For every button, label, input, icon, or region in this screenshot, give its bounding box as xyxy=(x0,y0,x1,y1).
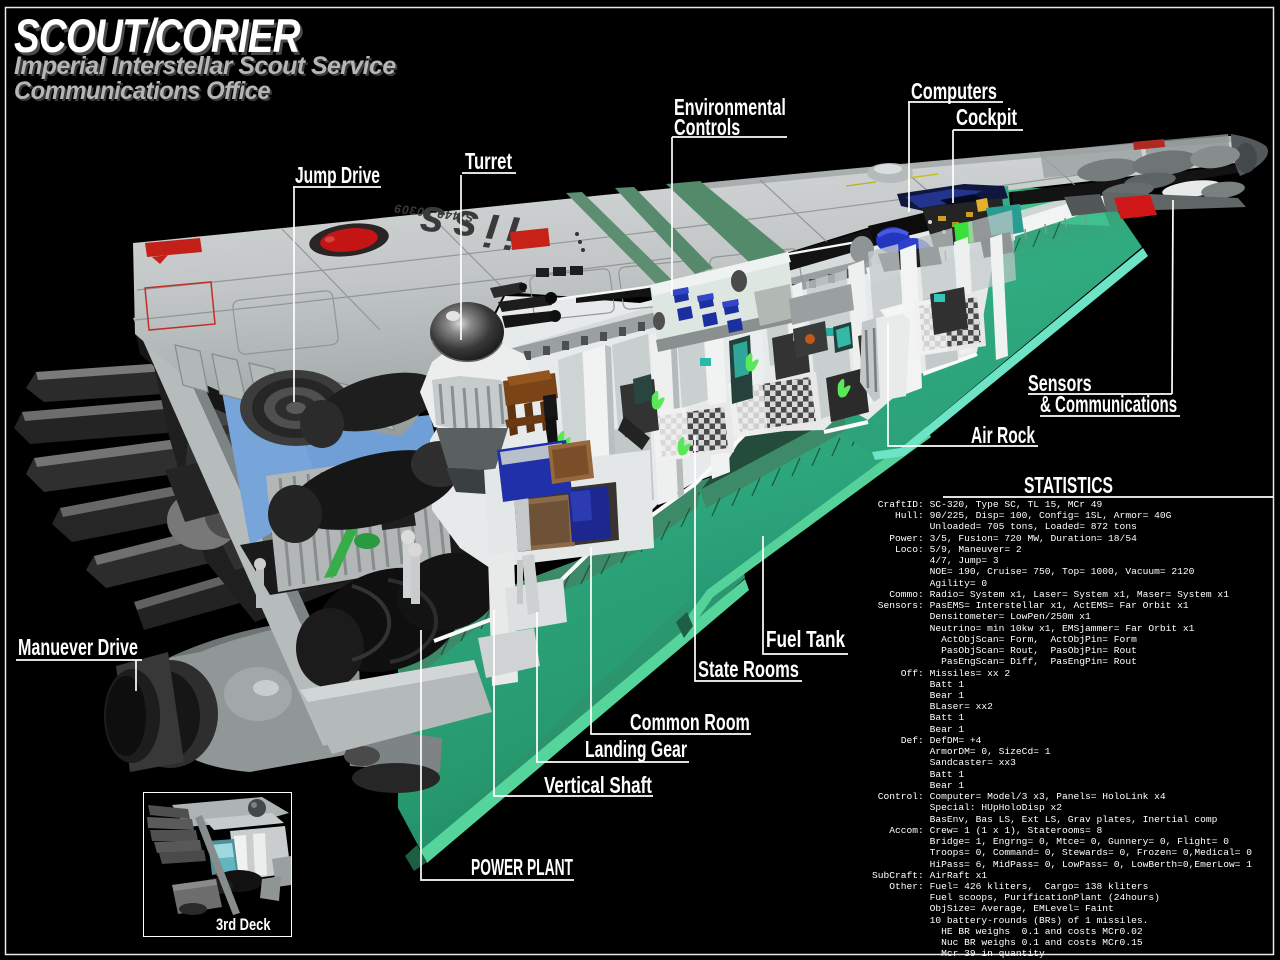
svg-text:3rd Deck: 3rd Deck xyxy=(216,915,271,934)
